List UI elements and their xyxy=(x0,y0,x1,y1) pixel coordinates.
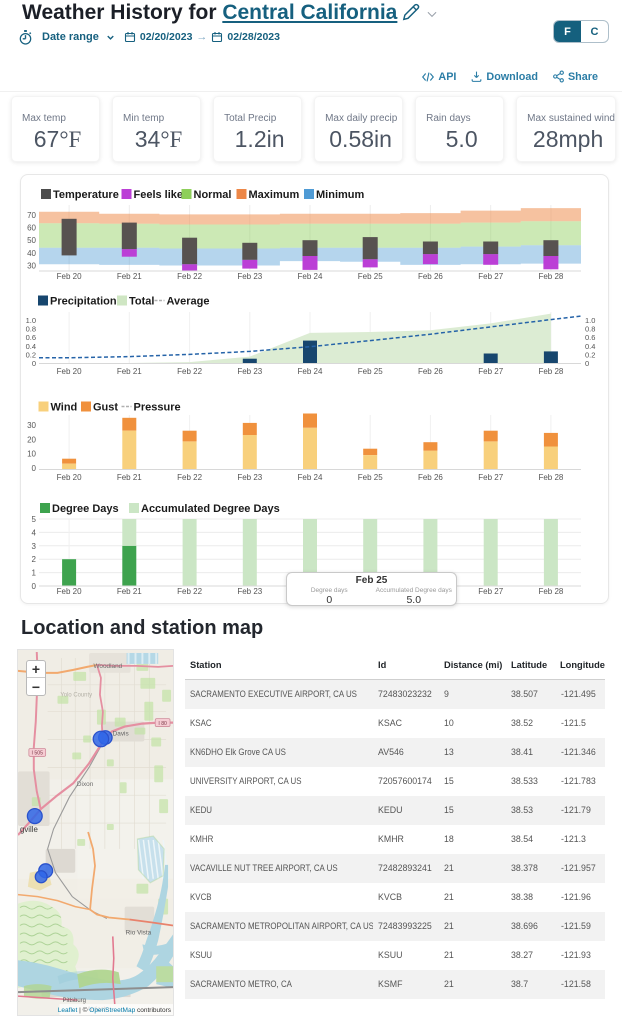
svg-text:2: 2 xyxy=(32,555,37,564)
svg-text:Maximum: Maximum xyxy=(249,189,300,201)
svg-text:Temperature: Temperature xyxy=(53,189,119,201)
svg-text:Average: Average xyxy=(167,296,210,308)
svg-text:Feb 20: Feb 20 xyxy=(57,473,82,482)
svg-text:Feb 20: Feb 20 xyxy=(57,587,82,596)
svg-text:Feb 23: Feb 23 xyxy=(237,473,262,482)
svg-text:Feb 22: Feb 22 xyxy=(177,367,202,376)
svg-text:Feb 27: Feb 27 xyxy=(478,367,503,376)
svg-text:Feb 23: Feb 23 xyxy=(237,272,262,281)
svg-text:Feb 24: Feb 24 xyxy=(298,473,323,482)
svg-text:I 505: I 505 xyxy=(32,751,44,757)
svg-text:Dixon: Dixon xyxy=(77,781,94,788)
svg-text:Feb 20: Feb 20 xyxy=(57,272,82,281)
svg-text:Normal: Normal xyxy=(194,189,232,201)
svg-text:Precipitation: Precipitation xyxy=(50,296,117,308)
svg-text:Feb 24: Feb 24 xyxy=(298,272,323,281)
svg-text:30: 30 xyxy=(27,262,36,271)
svg-text:3: 3 xyxy=(32,542,37,551)
svg-text:Feb 21: Feb 21 xyxy=(117,473,142,482)
svg-text:Feb 21: Feb 21 xyxy=(117,367,142,376)
svg-text:Feb 27: Feb 27 xyxy=(478,587,503,596)
svg-text:Feb 28: Feb 28 xyxy=(538,473,563,482)
svg-text:0: 0 xyxy=(585,359,589,368)
svg-text:40: 40 xyxy=(27,249,36,258)
svg-text:Feb 28: Feb 28 xyxy=(538,272,563,281)
svg-text:Feb 26: Feb 26 xyxy=(418,473,443,482)
svg-text:10: 10 xyxy=(27,450,36,459)
svg-text:Leaflet | © OpenStreetMap cont: Leaflet | © OpenStreetMap contributors xyxy=(58,1006,172,1014)
svg-text:Rio Vista: Rio Vista xyxy=(126,929,152,936)
svg-text:Total: Total xyxy=(129,296,154,308)
svg-text:Feb 25: Feb 25 xyxy=(358,367,383,376)
svg-text:Feb 22: Feb 22 xyxy=(177,272,202,281)
svg-text:Wind: Wind xyxy=(51,402,78,414)
svg-text:Feb 22: Feb 22 xyxy=(177,473,202,482)
svg-text:0: 0 xyxy=(32,464,37,473)
svg-text:1: 1 xyxy=(32,569,37,578)
svg-text:Feb 28: Feb 28 xyxy=(538,587,563,596)
svg-text:5: 5 xyxy=(32,515,37,524)
svg-text:30: 30 xyxy=(27,421,36,430)
svg-text:Feb 20: Feb 20 xyxy=(57,367,82,376)
svg-text:Gust: Gust xyxy=(93,402,118,414)
svg-text:0: 0 xyxy=(32,359,36,368)
svg-text:Feb 23: Feb 23 xyxy=(237,587,262,596)
svg-text:20: 20 xyxy=(27,435,36,444)
svg-text:60: 60 xyxy=(27,224,36,233)
svg-text:Feb 21: Feb 21 xyxy=(117,272,142,281)
svg-text:Feb 25: Feb 25 xyxy=(358,272,383,281)
svg-text:Feb 22: Feb 22 xyxy=(177,587,202,596)
svg-text:gville: gville xyxy=(20,825,39,834)
svg-text:I 80: I 80 xyxy=(158,721,167,727)
svg-text:Accumulated Degree Days: Accumulated Degree Days xyxy=(141,503,280,515)
svg-text:Feb 27: Feb 27 xyxy=(478,473,503,482)
svg-text:Feb 23: Feb 23 xyxy=(237,367,262,376)
svg-text:Degree Days: Degree Days xyxy=(52,503,119,515)
svg-text:Feb 26: Feb 26 xyxy=(418,367,443,376)
svg-text:4: 4 xyxy=(32,528,37,537)
svg-text:Woodland: Woodland xyxy=(93,663,122,670)
svg-text:Pressure: Pressure xyxy=(134,402,181,414)
svg-text:Feels like: Feels like xyxy=(134,189,184,201)
svg-text:Minimum: Minimum xyxy=(316,189,364,201)
svg-text:Feb 21: Feb 21 xyxy=(117,587,142,596)
svg-text:Davis: Davis xyxy=(113,731,129,738)
svg-text:Yolo County: Yolo County xyxy=(60,693,92,699)
svg-text:Feb 24: Feb 24 xyxy=(298,367,323,376)
svg-text:Pittsburg: Pittsburg xyxy=(63,998,86,1004)
svg-text:Feb 26: Feb 26 xyxy=(418,272,443,281)
svg-text:70: 70 xyxy=(27,211,36,220)
svg-text:Feb 27: Feb 27 xyxy=(478,272,503,281)
svg-text:50: 50 xyxy=(27,236,36,245)
svg-text:Feb 28: Feb 28 xyxy=(538,367,563,376)
svg-text:0: 0 xyxy=(32,582,37,591)
svg-text:Feb 25: Feb 25 xyxy=(358,473,383,482)
